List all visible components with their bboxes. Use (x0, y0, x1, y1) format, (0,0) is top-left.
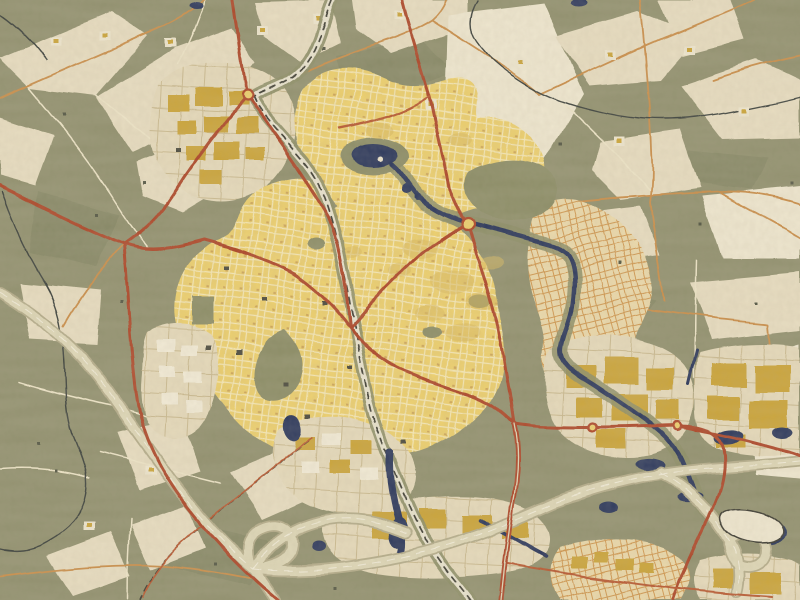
map-artwork: Painted street map of a town in oil-pain… (0, 0, 800, 600)
brushstroke-overlay (0, 0, 800, 600)
stylized-city-map: Painted street map of a town in oil-pain… (0, 0, 800, 600)
